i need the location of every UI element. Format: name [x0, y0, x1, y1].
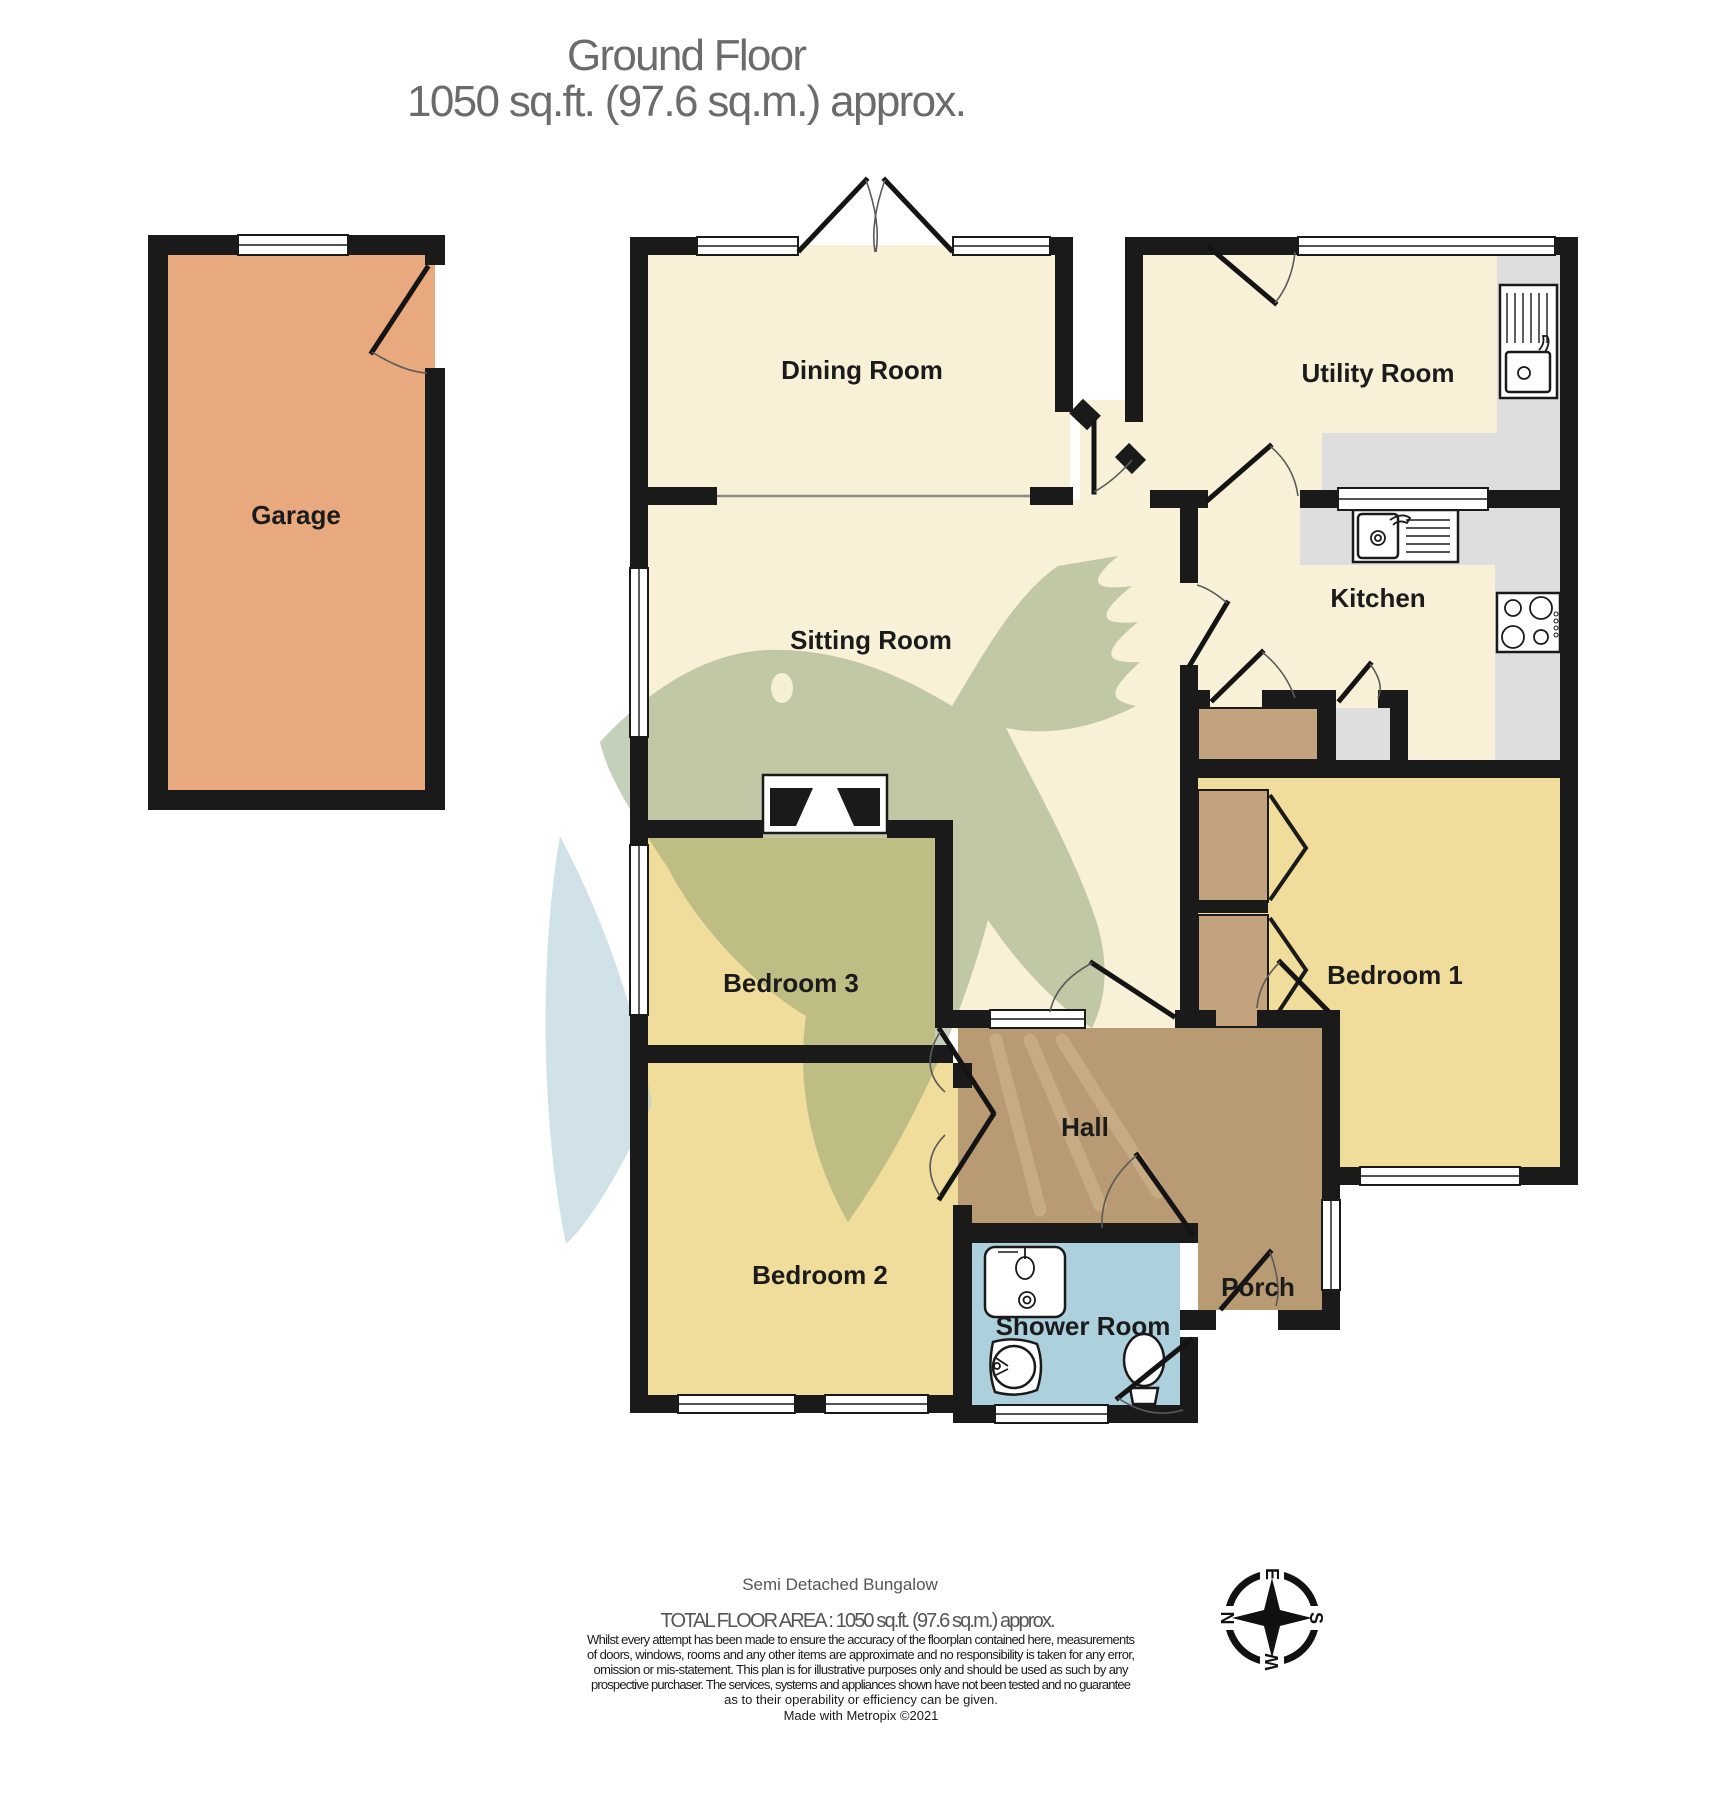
window-bedroom-2a: [678, 1395, 795, 1413]
washbasin-icon: [985, 1247, 1065, 1317]
label-dining-room: Dining Room: [781, 355, 943, 385]
window-utility-kitchen: [1338, 488, 1488, 510]
label-bedroom-3: Bedroom 3: [723, 968, 859, 998]
toilet-icon: [1124, 1334, 1164, 1404]
cupboard-brown: [1198, 708, 1318, 760]
label-hall: Hall: [1061, 1112, 1109, 1142]
cupboard-airing: [1336, 708, 1390, 760]
footer-disclaimer-line5: as to their operability or efficiency ca…: [724, 1692, 998, 1707]
label-porch: Porch: [1221, 1272, 1295, 1302]
label-kitchen: Kitchen: [1330, 583, 1425, 613]
window-bedroom-2b: [825, 1395, 928, 1413]
utility-sink-icon: [1500, 285, 1557, 398]
floorplan-canvas: Ground Floor 1050 sq.ft. (97.6 sq.m.) ap…: [0, 0, 1728, 1800]
label-utility-room: Utility Room: [1301, 358, 1454, 388]
shower-icon: [990, 1339, 1041, 1394]
window-bedroom-3: [630, 845, 648, 1015]
plan-title: Ground Floor 1050 sq.ft. (97.6 sq.m.) ap…: [407, 31, 967, 126]
compass-e: E: [1262, 1568, 1282, 1580]
window-garage: [238, 235, 348, 255]
bird-eye: [771, 673, 793, 703]
floorplan-page: Ground Floor 1050 sq.ft. (97.6 sq.m.) ap…: [0, 0, 1728, 1800]
footer-disclaimer-line4: prospective purchaser. The services, sys…: [591, 1677, 1131, 1692]
window-dining-1: [697, 237, 798, 255]
window-shower: [995, 1405, 1108, 1423]
utility-counter-2: [1322, 433, 1497, 490]
exterior-notch: [1073, 237, 1125, 400]
window-dining-2: [953, 237, 1050, 255]
label-shower-room: Shower Room: [996, 1311, 1171, 1341]
window-porch: [1322, 1200, 1340, 1290]
wardrobe-1: [1198, 790, 1268, 902]
kitchen-sink-icon: [1353, 510, 1458, 562]
fireplace-icon: [763, 775, 887, 833]
window-sitting: [630, 568, 648, 737]
footer: Semi Detached Bungalow TOTAL FLOOR AREA …: [587, 1575, 1136, 1723]
footer-disclaimer-line1: Whilst every attempt has been made to en…: [587, 1632, 1136, 1647]
label-bedroom-1: Bedroom 1: [1327, 960, 1463, 990]
title-floor-area: 1050 sq.ft. (97.6 sq.m.) approx.: [407, 77, 967, 126]
window-hall-screen: [990, 1010, 1085, 1028]
label-sitting-room: Sitting Room: [790, 625, 952, 655]
title-floor-name: Ground Floor: [567, 31, 807, 80]
label-garage: Garage: [251, 500, 341, 530]
footer-disclaimer-line2: of doors, windows, rooms and any other i…: [587, 1647, 1135, 1662]
compass-rose-icon: N E S W: [1216, 1562, 1328, 1674]
compass-w: W: [1262, 1654, 1282, 1671]
room-porch: [1198, 1028, 1322, 1310]
window-utility: [1298, 237, 1555, 255]
footer-property-type: Semi Detached Bungalow: [742, 1575, 938, 1594]
compass-s: S: [1306, 1612, 1326, 1624]
hob-icon: [1497, 593, 1560, 652]
footer-disclaimer-line3: omission or mis-statement. This plan is …: [594, 1662, 1130, 1677]
label-bedroom-2: Bedroom 2: [752, 1260, 888, 1290]
footer-total-area: TOTAL FLOOR AREA : 1050 sq.ft. (97.6 sq.…: [661, 1610, 1056, 1632]
footer-credit: Made with Metropix ©2021: [784, 1708, 939, 1723]
door-french-dining: [800, 180, 951, 252]
window-bedroom-1: [1360, 1167, 1520, 1185]
compass-n: N: [1218, 1612, 1238, 1625]
